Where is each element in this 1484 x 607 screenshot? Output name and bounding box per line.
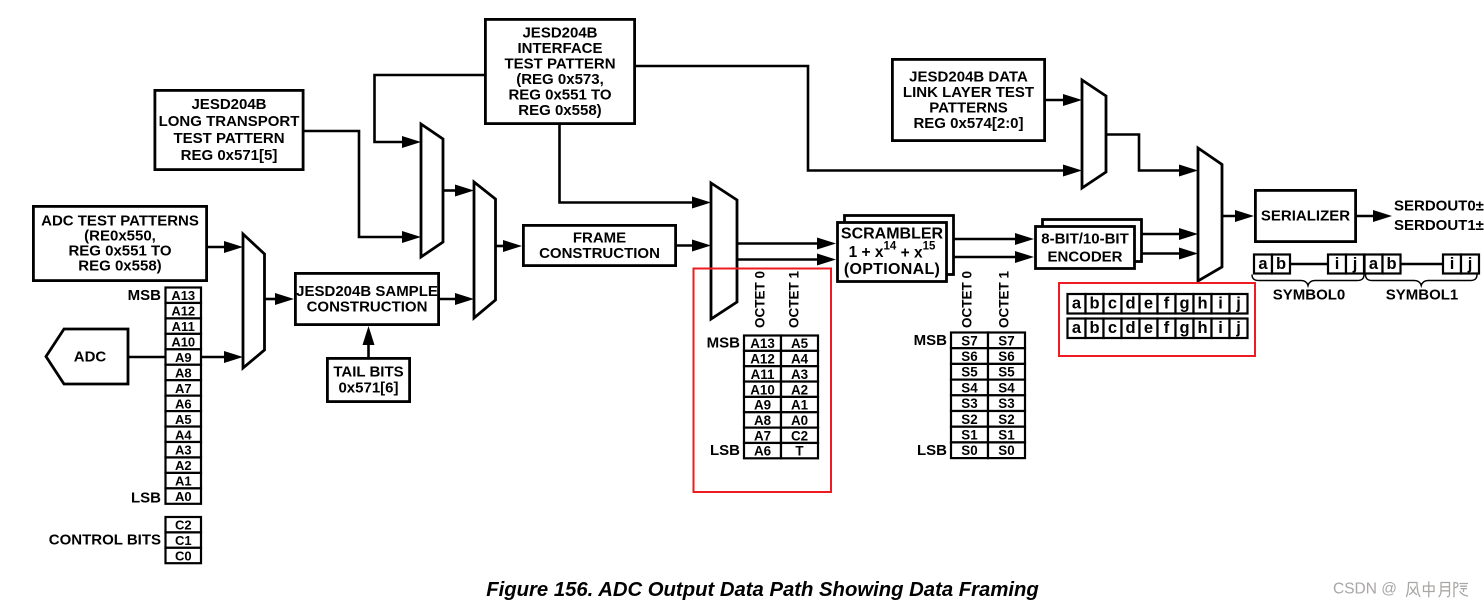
- svg-text:b: b: [1089, 319, 1099, 337]
- svg-text:A1: A1: [791, 398, 809, 413]
- svg-text:MSB: MSB: [707, 335, 741, 352]
- svg-text:JESD204B DATA: JESD204B DATA: [909, 68, 1028, 85]
- svg-text:FRAME: FRAME: [573, 229, 626, 246]
- svg-text:g: g: [1179, 295, 1189, 313]
- svg-text:SERDOUT1±: SERDOUT1±: [1394, 217, 1484, 234]
- svg-text:MSB: MSB: [128, 287, 162, 304]
- svg-text:ENCODER: ENCODER: [1047, 249, 1122, 266]
- svg-text:CONSTRUCTION: CONSTRUCTION: [307, 298, 428, 315]
- svg-text:i: i: [1218, 295, 1223, 313]
- svg-text:A3: A3: [175, 443, 192, 458]
- svg-text:OCTET 0: OCTET 0: [753, 271, 768, 328]
- svg-text:S7: S7: [998, 333, 1014, 348]
- svg-text:i: i: [1218, 319, 1223, 337]
- svg-text:h: h: [1197, 295, 1207, 313]
- svg-text:A6: A6: [754, 444, 771, 459]
- svg-text:f: f: [1164, 319, 1170, 337]
- svg-text:S2: S2: [998, 412, 1014, 427]
- svg-text:A5: A5: [175, 412, 192, 427]
- svg-text:a: a: [1369, 255, 1379, 273]
- svg-text:C1: C1: [175, 533, 192, 548]
- svg-text:T: T: [795, 444, 804, 459]
- svg-text:a: a: [1072, 319, 1082, 337]
- svg-text:S3: S3: [998, 396, 1014, 411]
- svg-text:j: j: [1235, 319, 1241, 337]
- svg-text:b: b: [1276, 255, 1286, 273]
- svg-text:(OPTIONAL): (OPTIONAL): [844, 261, 940, 278]
- svg-text:SYMBOL0: SYMBOL0: [1273, 287, 1346, 304]
- svg-text:i: i: [1450, 255, 1455, 273]
- svg-text:b: b: [1386, 255, 1396, 273]
- svg-text:SERIALIZER: SERIALIZER: [1261, 208, 1350, 225]
- svg-text:S1: S1: [961, 428, 978, 443]
- svg-text:OCTET 0: OCTET 0: [960, 271, 975, 328]
- svg-text:e: e: [1144, 295, 1153, 313]
- svg-text:S4: S4: [961, 380, 978, 395]
- svg-text:A4: A4: [791, 352, 809, 367]
- svg-text:A13: A13: [171, 288, 195, 303]
- svg-text:A11: A11: [172, 319, 195, 334]
- svg-text:REG 0x574[2:0]: REG 0x574[2:0]: [913, 115, 1023, 132]
- svg-text:A4: A4: [175, 427, 192, 442]
- svg-text:j: j: [1352, 255, 1358, 273]
- svg-text:S1: S1: [998, 428, 1015, 443]
- svg-text:OCTET 1: OCTET 1: [997, 271, 1012, 328]
- svg-text:j: j: [1467, 255, 1473, 273]
- svg-text:MSB: MSB: [914, 332, 948, 349]
- svg-text:A9: A9: [175, 350, 192, 365]
- svg-text:LSB: LSB: [131, 490, 161, 507]
- svg-text:S7: S7: [961, 333, 977, 348]
- svg-text:A10: A10: [171, 335, 195, 350]
- svg-text:SYMBOL1: SYMBOL1: [1386, 287, 1459, 304]
- svg-text:S2: S2: [961, 412, 977, 427]
- svg-text:A12: A12: [171, 304, 195, 319]
- svg-text:JESD204B SAMPLE: JESD204B SAMPLE: [296, 283, 438, 300]
- svg-text:C2: C2: [175, 518, 192, 533]
- svg-text:A8: A8: [754, 413, 772, 428]
- svg-text:TEST PATTERN: TEST PATTERN: [173, 130, 284, 147]
- svg-text:j: j: [1235, 295, 1241, 313]
- svg-text:LINK LAYER TEST: LINK LAYER TEST: [903, 84, 1034, 101]
- svg-text:f: f: [1164, 295, 1170, 313]
- svg-text:CONTROL BITS: CONTROL BITS: [49, 532, 161, 549]
- svg-text:a: a: [1072, 295, 1082, 313]
- svg-text:0x571[6]: 0x571[6]: [338, 380, 398, 397]
- svg-text:S5: S5: [961, 365, 978, 380]
- svg-text:A6: A6: [175, 396, 192, 411]
- svg-text:A7: A7: [175, 381, 192, 396]
- svg-text:PATTERNS: PATTERNS: [929, 99, 1008, 116]
- svg-text:REG 0x571[5]: REG 0x571[5]: [181, 147, 278, 164]
- svg-text:S6: S6: [998, 349, 1014, 364]
- svg-text:C2: C2: [791, 428, 808, 443]
- svg-text:(REG 0x573,: (REG 0x573,: [516, 71, 604, 88]
- svg-text:d: d: [1125, 319, 1135, 337]
- svg-text:CSDN @: CSDN @: [1333, 581, 1397, 598]
- svg-text:8-BIT/10-BIT: 8-BIT/10-BIT: [1041, 231, 1129, 248]
- svg-text:A9: A9: [754, 398, 771, 413]
- svg-text:ADC: ADC: [74, 349, 107, 366]
- svg-text:c: c: [1108, 319, 1117, 337]
- svg-text:S6: S6: [961, 349, 977, 364]
- svg-text:d: d: [1125, 295, 1135, 313]
- svg-text:h: h: [1197, 319, 1207, 337]
- svg-text:A7: A7: [754, 428, 771, 443]
- svg-text:e: e: [1144, 319, 1153, 337]
- svg-text:S5: S5: [998, 365, 1015, 380]
- svg-text:A0: A0: [175, 489, 192, 504]
- svg-text:A11: A11: [751, 367, 775, 382]
- svg-text:g: g: [1179, 319, 1189, 337]
- svg-text:SERDOUT0±: SERDOUT0±: [1394, 198, 1484, 215]
- svg-text:A2: A2: [791, 382, 808, 397]
- svg-text:LONG TRANSPORT: LONG TRANSPORT: [159, 113, 300, 130]
- svg-text:TAIL BITS: TAIL BITS: [333, 364, 403, 381]
- svg-text:C0: C0: [175, 549, 192, 564]
- svg-text:REG 0x551 TO: REG 0x551 TO: [508, 86, 611, 103]
- svg-text:OCTET 1: OCTET 1: [787, 271, 802, 328]
- svg-text:JESD204B: JESD204B: [522, 24, 597, 41]
- svg-text:LSB: LSB: [710, 442, 740, 459]
- svg-text:A3: A3: [791, 367, 808, 382]
- svg-text:i: i: [1335, 255, 1340, 273]
- svg-text:A2: A2: [175, 458, 192, 473]
- svg-text:A12: A12: [750, 352, 775, 367]
- svg-text:a: a: [1258, 255, 1268, 273]
- svg-text:S0: S0: [961, 443, 977, 458]
- svg-text:A8: A8: [175, 365, 192, 380]
- svg-text:S4: S4: [998, 380, 1015, 395]
- svg-text:REG 0x558): REG 0x558): [518, 102, 601, 119]
- svg-text:S0: S0: [998, 443, 1014, 458]
- svg-text:TEST PATTERN: TEST PATTERN: [504, 55, 615, 72]
- svg-text:LSB: LSB: [917, 442, 947, 459]
- svg-text:c: c: [1108, 295, 1117, 313]
- svg-text:JESD204B: JESD204B: [191, 96, 266, 113]
- svg-text:CONSTRUCTION: CONSTRUCTION: [539, 245, 660, 262]
- svg-text:REG 0x558): REG 0x558): [78, 258, 161, 275]
- svg-text:A10: A10: [750, 382, 775, 397]
- svg-text:A13: A13: [750, 336, 775, 351]
- svg-text:b: b: [1089, 295, 1099, 313]
- svg-text:S3: S3: [961, 396, 977, 411]
- svg-text:A0: A0: [791, 413, 808, 428]
- svg-text:Figure 156. ADC Output Data Pa: Figure 156. ADC Output Data Path Showing…: [486, 579, 1039, 601]
- svg-text:INTERFACE: INTERFACE: [517, 40, 602, 57]
- svg-text:A1: A1: [175, 474, 192, 489]
- svg-text:A5: A5: [791, 336, 809, 351]
